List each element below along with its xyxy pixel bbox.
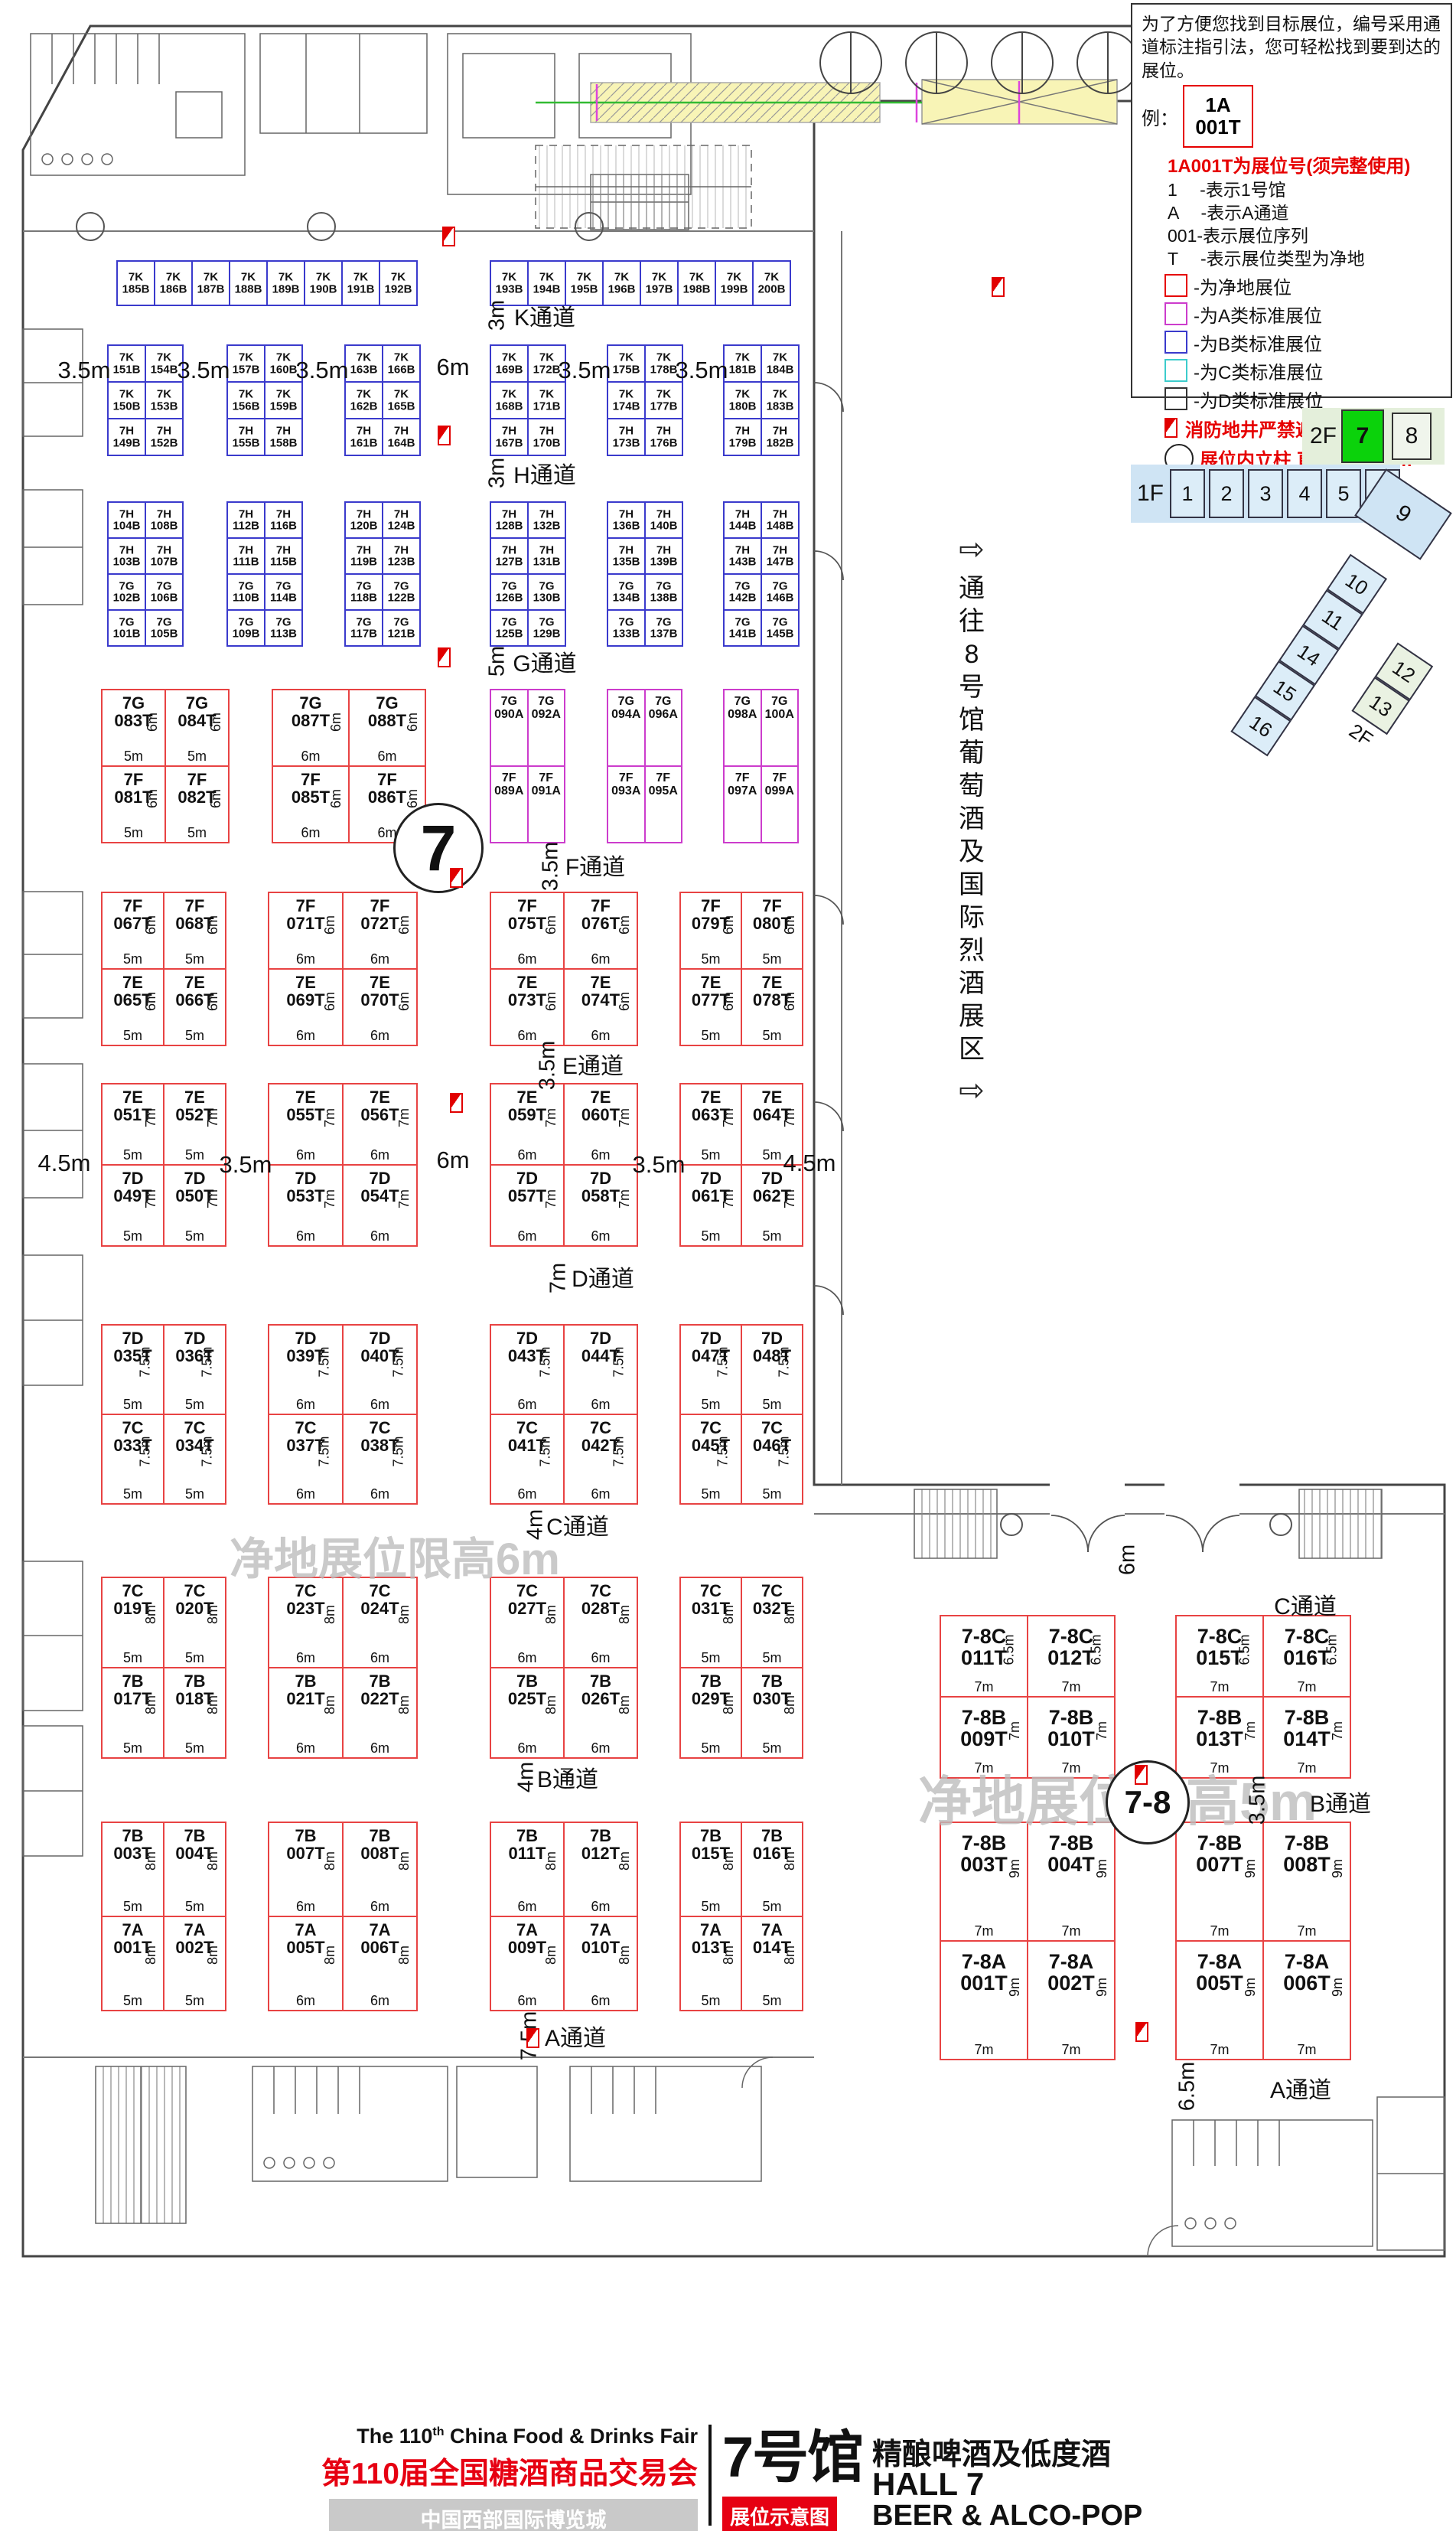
- booth-7B-030T: 7B030T5m8m: [741, 1667, 803, 1759]
- booth-label: 7H131B: [529, 544, 565, 568]
- legend-swatch-row: -为B类标准展位: [1164, 329, 1441, 356]
- booth-7B-007T: 7B007T6m8m: [268, 1822, 344, 1917]
- booth-7K-156B: 7K156B: [226, 381, 265, 419]
- booth-width-dim: 5m: [742, 1993, 802, 2009]
- booth-height-dim: 9m: [1330, 1859, 1346, 1878]
- aisle-dim-C通道: 6m: [1116, 1544, 1141, 1575]
- booth-label: 7H104B: [109, 508, 145, 532]
- booth-7H-131B: 7H131B: [527, 537, 566, 575]
- booth-width-dim: 6m: [344, 1650, 416, 1666]
- booth-7D-040T: 7D040T6m7.5m: [342, 1324, 418, 1415]
- booth-width-dim: 6m: [565, 1147, 637, 1163]
- booth-7H-144B: 7H144B: [723, 501, 762, 539]
- booth-width-dim: 6m: [344, 1993, 416, 2009]
- booth-width-dim: 6m: [565, 951, 637, 967]
- booth-height-dim: 8m: [396, 1605, 412, 1624]
- booth-height-dim: 7.5m: [137, 1346, 153, 1377]
- minimap-1f-label: 1F: [1137, 481, 1164, 507]
- booth-7K-175B: 7K175B: [607, 344, 646, 383]
- booth-7G-088T: 7G088T6m6m: [348, 689, 426, 767]
- booth-width-dim: 6m: [491, 951, 563, 967]
- booth-7A-014T: 7A014T5m8m: [741, 1916, 803, 2011]
- booth-7G-117B: 7G117B: [344, 609, 383, 647]
- booth-7A-005T: 7A005T6m8m: [268, 1916, 344, 2011]
- booth-7D-043T: 7D043T6m7.5m: [490, 1324, 565, 1415]
- booth-7H-136B: 7H136B: [607, 501, 646, 539]
- booth-width-dim: 5m: [681, 1147, 741, 1163]
- aisle-dim-B通道: 4m: [514, 1762, 539, 1792]
- booth-7K-183B: 7K183B: [761, 381, 800, 419]
- booth-7G-121B: 7G121B: [382, 609, 421, 647]
- fire-well-icon: [992, 277, 1005, 297]
- minimap-2f-group: 2F 7 8: [1302, 408, 1445, 465]
- booth-label: 7G118B: [346, 580, 382, 604]
- booth-7-8C-015T: 7-8C015T7m6.5m: [1175, 1615, 1264, 1698]
- booth-7A-013T: 7A013T5m8m: [679, 1916, 742, 2011]
- aisle-dim-H通道: 3m: [485, 458, 510, 488]
- booth-7K-151B: 7K151B: [107, 344, 146, 383]
- legend-code-lines: 1 -表示1号馆A -表示A通道001-表示展位序列T -表示展位类型为净地: [1142, 179, 1441, 271]
- booth-height-dim: 7m: [1007, 1721, 1023, 1740]
- booth-7G-130B: 7G130B: [527, 573, 566, 611]
- booth-height-dim: 8m: [543, 1851, 559, 1871]
- booth-width-dim: 5m: [164, 1993, 225, 2009]
- booth-7B-018T: 7B018T5m8m: [163, 1667, 226, 1759]
- booth-7K-166B: 7K166B: [382, 344, 421, 383]
- booth-label: 7H147B: [762, 544, 798, 568]
- booth-7B-029T: 7B029T5m8m: [679, 1667, 742, 1759]
- booth-label: 7H144B: [725, 508, 761, 532]
- booth-height-dim: 6.5m: [1088, 1635, 1104, 1665]
- booth-label: 7G138B: [646, 580, 682, 604]
- booth-height-dim: 6m: [543, 992, 559, 1011]
- booth-7G-101B: 7G101B: [107, 609, 146, 647]
- booth-7F-071T: 7F071T6m6m: [268, 892, 344, 970]
- booth-7G-092A: 7G092A: [527, 689, 566, 767]
- booth-7B-003T: 7B003T5m8m: [101, 1822, 164, 1917]
- booth-label: 7H164B: [383, 425, 419, 448]
- booth-width-dim: 5m: [103, 1228, 163, 1244]
- booth-height-dim: 7m: [143, 1108, 159, 1127]
- booth-7D-044T: 7D044T6m7.5m: [563, 1324, 638, 1415]
- booth-7G-141B: 7G141B: [723, 609, 762, 647]
- booth-label: 7F099A: [762, 772, 798, 797]
- booth-7-8B-007T: 7-8B007T7m9m: [1175, 1822, 1264, 1942]
- booth-label: 7H103B: [109, 544, 145, 568]
- booth-label: 7K197B: [641, 271, 677, 295]
- booth-height-dim: 8m: [617, 1605, 633, 1624]
- hall-minimap: 2F 7 8 1F 123456 9 1011141516 12132F: [1131, 402, 1455, 830]
- booth-7F-099A: 7F099A: [761, 765, 800, 843]
- booth-width-dim: 5m: [681, 1993, 741, 2009]
- booth-width-dim: 5m: [103, 1740, 163, 1756]
- booth-height-dim: 7m: [543, 1108, 559, 1127]
- leg-line: A -表示A通道: [1168, 202, 1441, 225]
- booth-label: 7G110B: [228, 580, 264, 604]
- minimap-hall7-highlighted: 7: [1341, 409, 1384, 463]
- booth-height-dim: 8m: [322, 1605, 338, 1624]
- booth-7A-006T: 7A006T6m8m: [342, 1916, 418, 2011]
- booth-width-dim: 6m: [269, 1993, 342, 2009]
- booth-height-dim: 6m: [721, 992, 737, 1011]
- booth-7F-075T: 7F075T6m6m: [490, 892, 565, 970]
- booth-width-dim: 7m: [1264, 2042, 1350, 2058]
- booth-width-dim: 6m: [269, 1228, 342, 1244]
- aisle-dim-K通道: 3m: [485, 300, 510, 331]
- aisle-dim-E通道: 3.5m: [536, 1041, 561, 1090]
- booth-width-dim: 5m: [103, 1397, 163, 1413]
- aisle-label-A通道: A通道: [1270, 2071, 1331, 2105]
- booth-height-dim: 7.5m: [199, 1346, 215, 1377]
- gap-dim: 3.5m: [633, 1151, 686, 1179]
- booth-7B-008T: 7B008T6m8m: [342, 1822, 418, 1917]
- booth-height-dim: 8m: [143, 1946, 159, 1965]
- booth-7B-004T: 7B004T5m8m: [163, 1822, 226, 1917]
- booth-label: 7K187B: [193, 271, 229, 295]
- booth-height-dim: 6m: [205, 992, 221, 1011]
- booth-label: 7G134B: [608, 580, 644, 604]
- booth-label: 7G142B: [725, 580, 761, 604]
- booth-7H-111B: 7H111B: [226, 537, 265, 575]
- booth-7G-102B: 7G102B: [107, 573, 146, 611]
- booth-width-dim: 6m: [565, 1993, 637, 2009]
- booth-label: 7H139B: [646, 544, 682, 568]
- booth-height-dim: 6m: [328, 713, 344, 732]
- minimap-hall-5: 5: [1326, 469, 1361, 518]
- booth-7K-184B: 7K184B: [761, 344, 800, 383]
- fire-well-icon: [1135, 1765, 1148, 1785]
- booth-label: 7G125B: [491, 616, 527, 640]
- fire-well-icon: [450, 868, 463, 888]
- booth-height-dim: 8m: [617, 1946, 633, 1965]
- booth-width-dim: 6m: [273, 749, 348, 765]
- booth-7G-105B: 7G105B: [145, 609, 184, 647]
- booth-width-dim: 5m: [166, 825, 228, 841]
- booth-7K-185B: 7K185B: [116, 260, 155, 306]
- booth-height-dim: 8m: [396, 1695, 412, 1714]
- booth-7G-083T: 7G083T5m6m: [101, 689, 166, 767]
- booth-7-8A-001T: 7-8A001T7m9m: [940, 1940, 1028, 2060]
- booth-height-dim: 6m: [721, 915, 737, 934]
- legend-example-booth: 1A 001T: [1183, 85, 1253, 148]
- booth-7G-133B: 7G133B: [607, 609, 646, 647]
- booth-7C-031T: 7C031T5m8m: [679, 1577, 742, 1668]
- booth-7F-068T: 7F068T5m6m: [163, 892, 226, 970]
- arrow-right-icon: ⇨: [953, 534, 990, 565]
- booth-label: 7G117B: [346, 616, 382, 640]
- booth-7D-054T: 7D054T6m7m: [342, 1164, 418, 1247]
- booth-label: 7K166B: [383, 351, 419, 375]
- booth-7K-169B: 7K169B: [490, 344, 529, 383]
- booth-7H-116B: 7H116B: [264, 501, 303, 539]
- booth-7G-125B: 7G125B: [490, 609, 529, 647]
- booth-width-dim: 6m: [269, 1147, 342, 1163]
- booth-7D-061T: 7D061T5m7m: [679, 1164, 742, 1247]
- booth-width-dim: 5m: [164, 1650, 225, 1666]
- booth-height-dim: 7m: [322, 1108, 338, 1127]
- booth-7H-158B: 7H158B: [264, 418, 303, 456]
- booth-label: 7H155B: [228, 425, 264, 448]
- booth-height-dim: 6m: [145, 713, 161, 732]
- booth-7-8B-008T: 7-8B008T7m9m: [1262, 1822, 1351, 1942]
- corridor-char: 及: [953, 836, 990, 869]
- booth-7F-072T: 7F072T6m6m: [342, 892, 418, 970]
- booth-height-dim: 6m: [396, 915, 412, 934]
- gap-dim: 6m: [436, 1146, 469, 1174]
- booth-height-dim: 7.5m: [199, 1436, 215, 1466]
- booth-label: 7H149B: [109, 425, 145, 448]
- booth-7A-001T: 7A001T5m8m: [101, 1916, 164, 2011]
- booth-height-dim: 7.5m: [137, 1436, 153, 1466]
- booth-7K-199B: 7K199B: [715, 260, 754, 306]
- booth-7K-192B: 7K192B: [379, 260, 418, 306]
- booth-label: 7K198B: [679, 271, 715, 295]
- booth-width-dim: 5m: [103, 1147, 163, 1163]
- booth-7C-034T: 7C034T5m7.5m: [163, 1414, 226, 1505]
- booth-height-dim: 8m: [143, 1851, 159, 1871]
- booth-width-dim: 5m: [164, 1899, 225, 1915]
- booth-7A-002T: 7A002T5m8m: [163, 1916, 226, 2011]
- booth-label: 7K168B: [491, 388, 527, 412]
- booth-7C-032T: 7C032T5m8m: [741, 1577, 803, 1668]
- gap-dim: 3.5m: [296, 357, 349, 384]
- booth-label: 7K156B: [228, 388, 264, 412]
- booth-label: 7K153B: [146, 388, 182, 412]
- booth-label: 7C046T: [742, 1420, 802, 1455]
- booth-label: 7H167B: [491, 425, 527, 448]
- legend-swatch-row: -为C类标准展位: [1164, 357, 1441, 384]
- booth-height-dim: 6m: [396, 992, 412, 1011]
- booth-label: 7K171B: [529, 388, 565, 412]
- booth-7K-165B: 7K165B: [382, 381, 421, 419]
- booth-height-dim: 7.5m: [611, 1436, 627, 1466]
- booth-7H-124B: 7H124B: [382, 501, 421, 539]
- corridor-char: 酒: [953, 967, 990, 1000]
- booth-7K-174B: 7K174B: [607, 381, 646, 419]
- booth-width-dim: 7m: [941, 1923, 1027, 1939]
- booth-label: 7H123B: [383, 544, 419, 568]
- booth-7H-103B: 7H103B: [107, 537, 146, 575]
- booth-label: 7K184B: [762, 351, 798, 375]
- booth-7G-146B: 7G146B: [761, 573, 800, 611]
- booth-7D-048T: 7D048T5m7.5m: [741, 1324, 803, 1415]
- booth-height-dim: 7.5m: [316, 1436, 332, 1466]
- booth-width-dim: 6m: [273, 825, 348, 841]
- booth-label: 7K188B: [230, 271, 266, 295]
- booth-width-dim: 7m: [1264, 1923, 1350, 1939]
- booth-height-dim: 7m: [782, 1189, 798, 1208]
- booth-7B-021T: 7B021T6m8m: [268, 1667, 344, 1759]
- aisle-dim-B通道: 3.5m: [1246, 1776, 1271, 1825]
- booth-7C-045T: 7C045T5m7.5m: [679, 1414, 742, 1505]
- booth-label: 7K185B: [118, 271, 154, 295]
- booth-label: 7H127B: [491, 544, 527, 568]
- booth-height-dim: 7m: [143, 1189, 159, 1208]
- booth-7G-087T: 7G087T6m6m: [272, 689, 350, 767]
- booth-label: 7H179B: [725, 425, 761, 448]
- swatch-text: -为净地展位: [1194, 272, 1292, 299]
- booth-label: 7K175B: [608, 351, 644, 375]
- booth-height-dim: 8m: [205, 1695, 221, 1714]
- booth-height-dim: 6m: [208, 789, 224, 808]
- title-block: The 110th China Food & Drinks Fair 第110届…: [329, 2425, 1109, 2529]
- booth-label: 7H143B: [725, 544, 761, 568]
- booth-7H-120B: 7H120B: [344, 501, 383, 539]
- booth-width-dim: 6m: [269, 1486, 342, 1502]
- legend-headline: 1A001T为展位号(须完整使用): [1168, 151, 1441, 178]
- booth-label: 7D047T: [681, 1330, 741, 1365]
- booth-7G-110B: 7G110B: [226, 573, 265, 611]
- booth-7-8A-002T: 7-8A002T7m9m: [1027, 1940, 1116, 2060]
- booth-width-dim: 6m: [491, 1486, 563, 1502]
- booth-label: 7G092A: [529, 696, 565, 721]
- booth-width-dim: 6m: [565, 1650, 637, 1666]
- aisle-label-D通道: D通道: [572, 1260, 634, 1293]
- booth-7G-106B: 7G106B: [145, 573, 184, 611]
- booth-width-dim: 5m: [103, 1028, 163, 1044]
- booth-height-dim: 6m: [208, 713, 224, 732]
- aisle-dim-A通道: 6.5m: [1175, 2062, 1200, 2111]
- corridor-char: 烈: [953, 934, 990, 967]
- booth-7G-109B: 7G109B: [226, 609, 265, 647]
- leg-line: 1 -表示1号馆: [1168, 179, 1441, 202]
- booth-7K-168B: 7K168B: [490, 381, 529, 419]
- booth-label: 7C034T: [164, 1420, 225, 1455]
- booth-7D-050T: 7D050T5m7m: [163, 1164, 226, 1247]
- minimap-2f-label: 2F: [1310, 423, 1337, 449]
- booth-label: 7H124B: [383, 508, 419, 532]
- booth-7G-138B: 7G138B: [644, 573, 683, 611]
- booth-width-dim: 5m: [742, 1486, 802, 1502]
- booth-width-dim: 5m: [164, 951, 225, 967]
- booth-width-dim: 6m: [491, 1228, 563, 1244]
- booth-label: 7K181B: [725, 351, 761, 375]
- booth-7D-058T: 7D058T6m7m: [563, 1164, 638, 1247]
- booth-7C-033T: 7C033T5m7.5m: [101, 1414, 164, 1505]
- booth-height-dim: 9m: [1007, 1859, 1023, 1878]
- booth-height-dim: 8m: [721, 1605, 737, 1624]
- booth-7H-140B: 7H140B: [644, 501, 683, 539]
- aisle-dim-C通道: 4m: [523, 1509, 549, 1540]
- booth-7K-187B: 7K187B: [191, 260, 230, 306]
- booth-height-dim: 9m: [1243, 1978, 1259, 1997]
- booth-width-dim: 5m: [742, 1397, 802, 1413]
- booth-label: 7F097A: [725, 772, 761, 797]
- booth-7A-009T: 7A009T6m8m: [490, 1916, 565, 2011]
- booth-7H-127B: 7H127B: [490, 537, 529, 575]
- height-limit-watermark: 净地展位限高6m: [230, 1523, 560, 1587]
- booth-width-dim: 6m: [491, 1397, 563, 1413]
- booth-label: 7K194B: [529, 271, 565, 295]
- booth-label: 7F089A: [491, 772, 527, 797]
- booth-height-dim: 7.5m: [611, 1346, 627, 1377]
- booth-width-dim: 7m: [1028, 2042, 1114, 2058]
- booth-7G-114B: 7G114B: [264, 573, 303, 611]
- booth-width-dim: 6m: [491, 1147, 563, 1163]
- booth-7K-198B: 7K198B: [677, 260, 716, 306]
- hall-marker-7-8: 7-8: [1106, 1760, 1190, 1844]
- corridor-char: 8: [953, 638, 990, 671]
- booth-width-dim: 6m: [565, 1397, 637, 1413]
- booth-7B-022T: 7B022T6m8m: [342, 1667, 418, 1759]
- booth-7C-023T: 7C023T6m8m: [268, 1577, 344, 1668]
- booth-height-dim: 6m: [145, 789, 161, 808]
- booth-height-dim: 7.5m: [316, 1346, 332, 1377]
- booth-width-dim: 5m: [742, 1028, 802, 1044]
- booth-label: 7K193B: [491, 271, 527, 295]
- fire-well-icon: [442, 227, 455, 246]
- booth-7E-073T: 7E073T6m6m: [490, 968, 565, 1046]
- corridor-char: 酒: [953, 803, 990, 836]
- fire-well-icon: [438, 647, 451, 667]
- booth-width-dim: 5m: [103, 1650, 163, 1666]
- booth-height-dim: 8m: [143, 1605, 159, 1624]
- booth-height-dim: 6m: [617, 915, 633, 934]
- hall-number-cn: 7号馆: [722, 2429, 862, 2486]
- booth-height-dim: 6m: [205, 915, 221, 934]
- booth-7K-186B: 7K186B: [154, 260, 193, 306]
- booth-label: 7G146B: [762, 580, 798, 604]
- booth-7-8B-004T: 7-8B004T7m9m: [1027, 1822, 1116, 1942]
- booth-width-dim: 6m: [344, 1147, 416, 1163]
- booth-width-dim: 7m: [1028, 1679, 1114, 1695]
- corridor-char: 号: [953, 671, 990, 704]
- booth-height-dim: 9m: [1330, 1978, 1346, 1997]
- booth-label: 7K183B: [762, 388, 798, 412]
- booth-width-dim: 6m: [344, 1228, 416, 1244]
- fire-well-icon: [1135, 2022, 1148, 2042]
- booth-7C-020T: 7C020T5m8m: [163, 1577, 226, 1668]
- booth-7H-104B: 7H104B: [107, 501, 146, 539]
- booth-width-dim: 5m: [164, 1028, 225, 1044]
- booth-width-dim: 6m: [344, 1740, 416, 1756]
- booth-height-dim: 8m: [782, 1851, 798, 1871]
- booth-width-dim: 7m: [1264, 1679, 1350, 1695]
- booth-label: 7K199B: [716, 271, 752, 295]
- legend-swatches: -为净地展位-为A类标准展位-为B类标准展位-为C类标准展位-为D类标准展位: [1142, 272, 1441, 413]
- booth-label: 7H119B: [346, 544, 382, 568]
- booth-width-dim: 5m: [742, 951, 802, 967]
- legend-intro: 为了方便您找到目标展位，编号采用通道标注指引法，您可轻松找到要到达的展位。: [1142, 12, 1441, 82]
- booth-7K-196B: 7K196B: [602, 260, 641, 306]
- booth-7H-173B: 7H173B: [607, 418, 646, 456]
- booth-7B-012T: 7B012T6m8m: [563, 1822, 638, 1917]
- booth-7E-074T: 7E074T6m6m: [563, 968, 638, 1046]
- booth-7C-019T: 7C019T5m8m: [101, 1577, 164, 1668]
- booth-label: 7D035T: [103, 1330, 163, 1365]
- booth-width-dim: 5m: [164, 1486, 225, 1502]
- booth-7C-028T: 7C028T6m8m: [563, 1577, 638, 1668]
- hall-category-en: BEER & ALCO-POP: [872, 2500, 1142, 2531]
- booth-7K-191B: 7K191B: [341, 260, 380, 306]
- booth-7H-119B: 7H119B: [344, 537, 383, 575]
- booth-width-dim: 5m: [681, 1650, 741, 1666]
- booth-7D-047T: 7D047T5m7.5m: [679, 1324, 742, 1415]
- booth-7H-179B: 7H179B: [723, 418, 762, 456]
- booth-7-8A-005T: 7-8A005T7m9m: [1175, 1940, 1264, 2060]
- booth-height-dim: 8m: [205, 1851, 221, 1871]
- booth-label: 7G114B: [265, 580, 301, 604]
- booth-label: 7D048T: [742, 1330, 802, 1365]
- booth-7C-046T: 7C046T5m7.5m: [741, 1414, 803, 1505]
- booth-7H-143B: 7H143B: [723, 537, 762, 575]
- booth-height-dim: 7.5m: [390, 1436, 406, 1466]
- booth-height-dim: 8m: [721, 1851, 737, 1871]
- booth-label: 7K157B: [228, 351, 264, 375]
- booth-height-dim: 8m: [396, 1946, 412, 1965]
- booth-height-dim: 6.5m: [1236, 1635, 1252, 1665]
- booth-7D-035T: 7D035T5m7.5m: [101, 1324, 164, 1415]
